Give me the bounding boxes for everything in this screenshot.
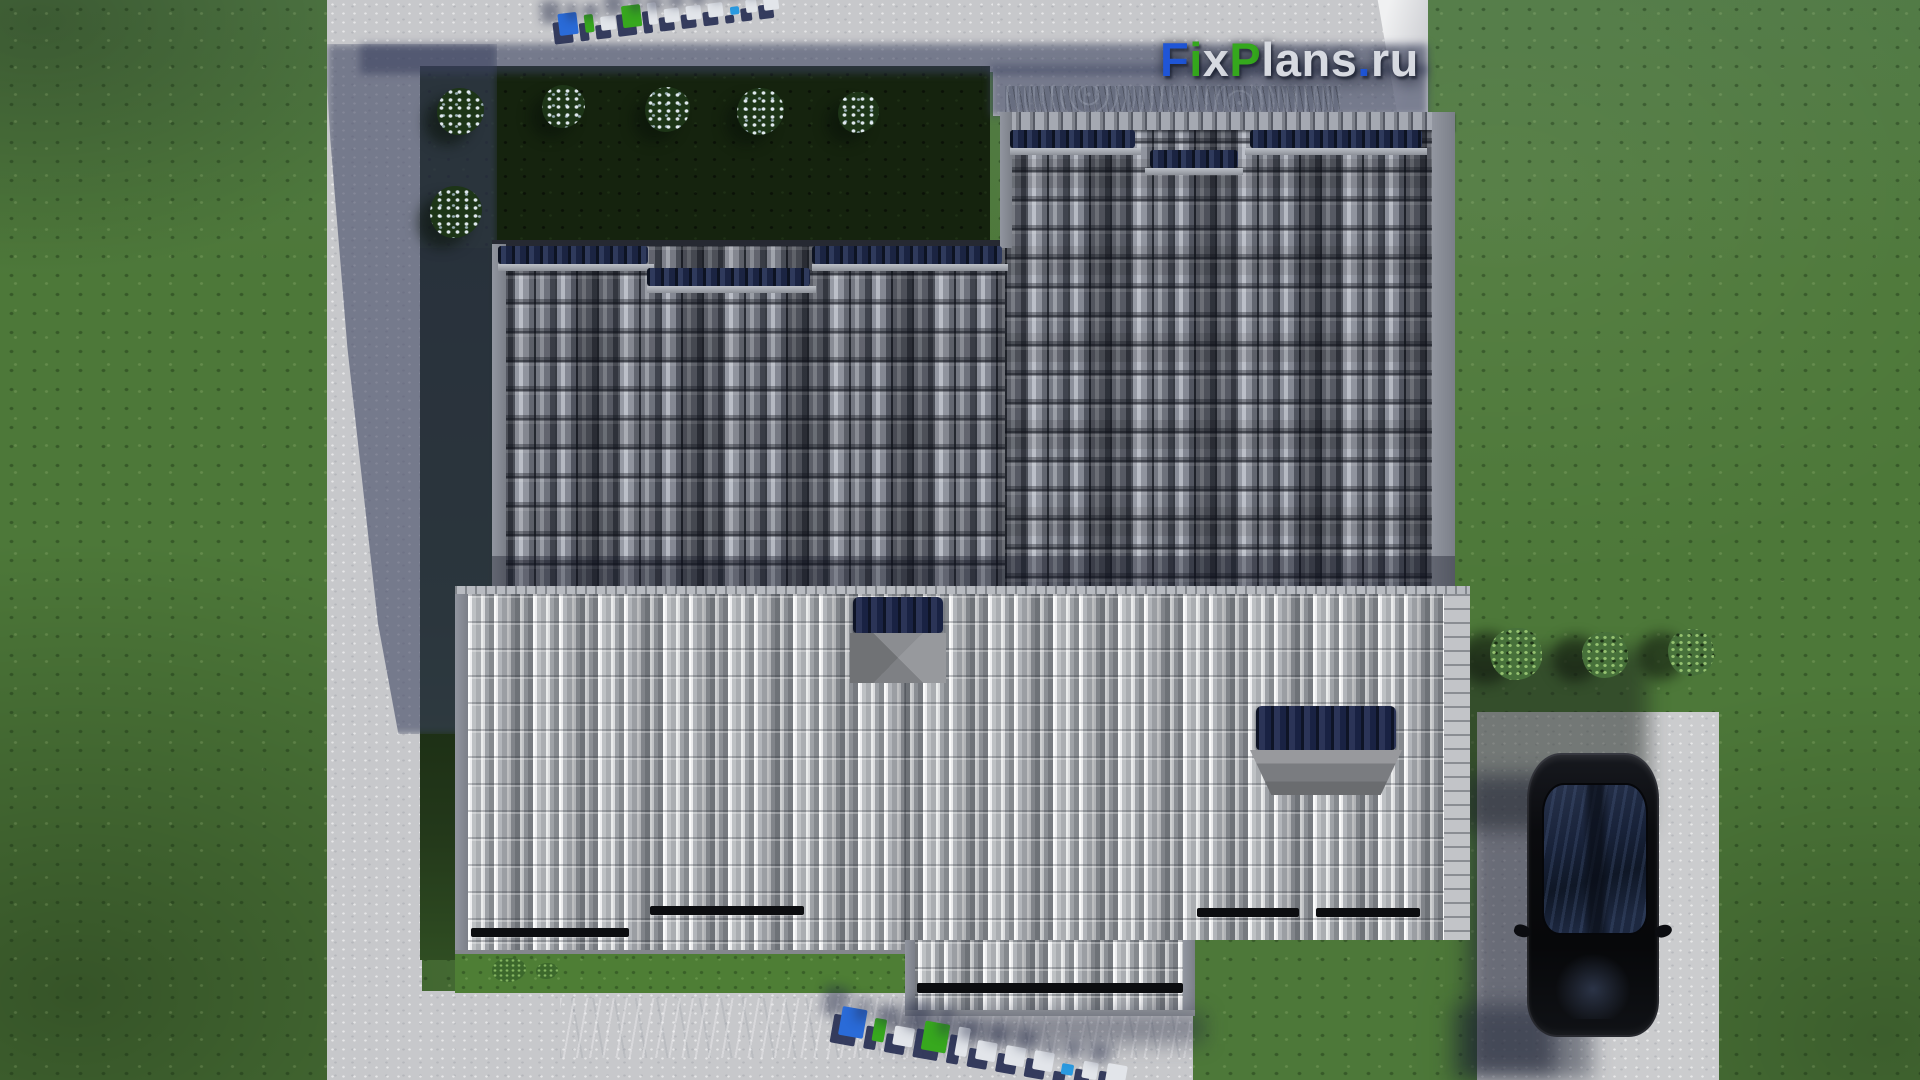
roof-hatch-tile-row (1256, 706, 1396, 750)
car-windshield-glass (1542, 783, 1648, 935)
roof-vent-row (498, 246, 648, 264)
porch-roof (905, 940, 1195, 1014)
roof-hatch-cap (1250, 750, 1402, 795)
roof-vent-bar (812, 264, 1008, 271)
roof-skylight-bar (1145, 168, 1243, 175)
roof-vent-bar (1245, 148, 1427, 155)
snowguard-strip (917, 983, 1183, 993)
roof-ridge (1005, 112, 1455, 130)
snowguard-strip (650, 906, 804, 915)
ground-logo-letter (763, 0, 780, 11)
ground-logo-letter (745, 0, 758, 13)
ground-logo-letter (584, 14, 595, 33)
watermark-letter: x (1203, 33, 1230, 86)
ground-logo-letter (647, 2, 659, 25)
ground-logo-letter (838, 1006, 868, 1039)
garden-bed (420, 66, 990, 248)
ground-logo-letter (664, 7, 681, 23)
watermark-letter: P (1229, 33, 1261, 86)
ground-logo-letter (975, 1040, 998, 1062)
roof-light-fascia-right (1444, 594, 1470, 940)
ground-logo-letter (557, 12, 579, 36)
ground-logo-letter (621, 4, 643, 28)
gravel-texture-strip (1005, 86, 1340, 114)
ground-logo-letter (954, 1026, 971, 1057)
ground-logo-letter (1061, 1063, 1075, 1076)
green-bush (1668, 629, 1714, 676)
green-bush (1490, 628, 1542, 680)
watermark-letter: F (1160, 33, 1189, 86)
roof-vent-bar (647, 286, 816, 293)
aerial-house-render: FixPlans.ru (0, 0, 1920, 1080)
watermark-logo: FixPlans.ru (1160, 32, 1419, 87)
watermark-letter: . (1357, 33, 1371, 86)
porch-fascia-right (1183, 940, 1195, 1016)
car-hood-reflection (1555, 953, 1631, 1019)
snowguard-strip (1197, 908, 1299, 917)
roof-dark-right-section (1005, 112, 1455, 594)
roof-fascia-left (492, 244, 506, 594)
roof-vent-row (647, 268, 810, 286)
roof-light-fascia-left (455, 594, 468, 952)
roof-skylight (1150, 150, 1238, 168)
ground-logo-letter (730, 6, 740, 15)
eave-edge (455, 950, 905, 954)
car (1527, 753, 1659, 1037)
ground-logo-letter (600, 15, 617, 31)
roof-vent-row (1250, 130, 1422, 148)
ground-logo-letter (1105, 1063, 1128, 1080)
roof-dark-left-section (492, 244, 1005, 594)
porch-fascia-left (905, 940, 915, 1016)
roof-vent-bar (1010, 148, 1141, 155)
ground-logo-letter (871, 1018, 887, 1043)
roof-vent-row (1010, 130, 1135, 148)
ground-logo-letter (892, 1025, 915, 1047)
ground-logo-letter (685, 5, 702, 21)
snowguard-strip (471, 928, 629, 937)
chimney-tile-row (853, 597, 943, 633)
snowguard-strip (1316, 908, 1420, 917)
ground-logo-letter (921, 1021, 951, 1054)
green-bush (1582, 632, 1628, 678)
watermark-letter: lans (1261, 33, 1357, 86)
chimney-cap (850, 633, 946, 683)
roof-vent-bar (498, 264, 654, 271)
roof-vent-row (812, 246, 1002, 264)
ground-logo-letter (1032, 1050, 1055, 1072)
roof-fascia-right (1432, 112, 1455, 594)
watermark-letter: i (1189, 33, 1203, 86)
ground-logo-letter (1003, 1045, 1026, 1067)
watermark-letter: ru (1371, 33, 1419, 86)
ground-logo-letter (707, 2, 724, 18)
ground-logo-letter (1081, 1061, 1099, 1080)
